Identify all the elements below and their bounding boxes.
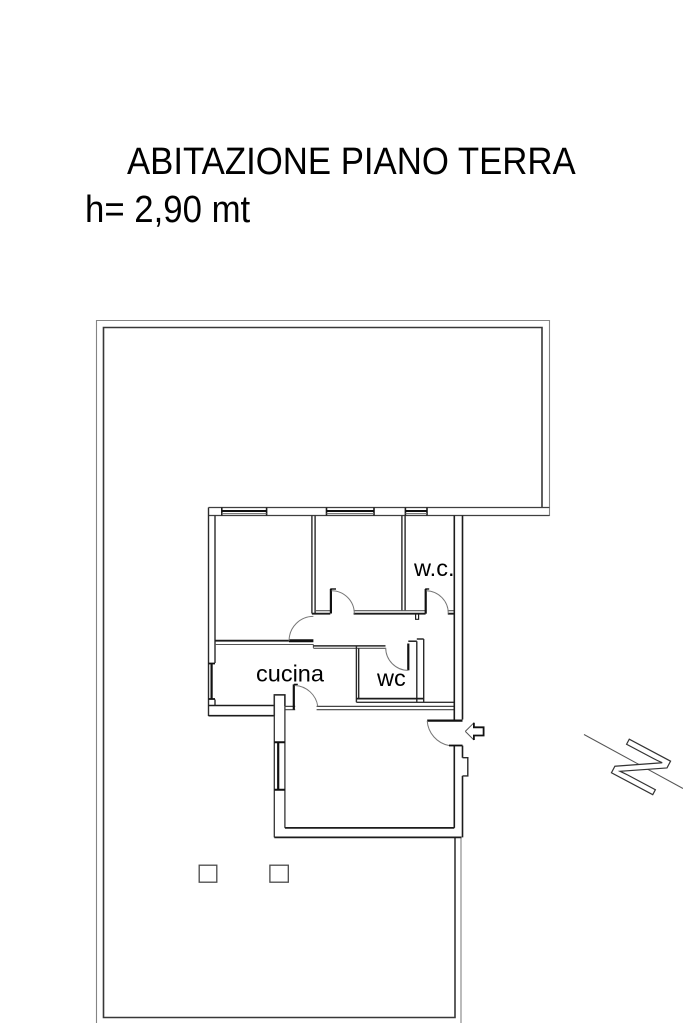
svg-text:cucina: cucina <box>256 661 325 687</box>
svg-text:h= 2,90 mt: h= 2,90 mt <box>85 188 250 231</box>
svg-text:wc: wc <box>376 665 406 691</box>
svg-text:w.c.: w.c. <box>413 555 454 581</box>
svg-text:ABITAZIONE PIANO TERRA: ABITAZIONE PIANO TERRA <box>127 140 576 183</box>
